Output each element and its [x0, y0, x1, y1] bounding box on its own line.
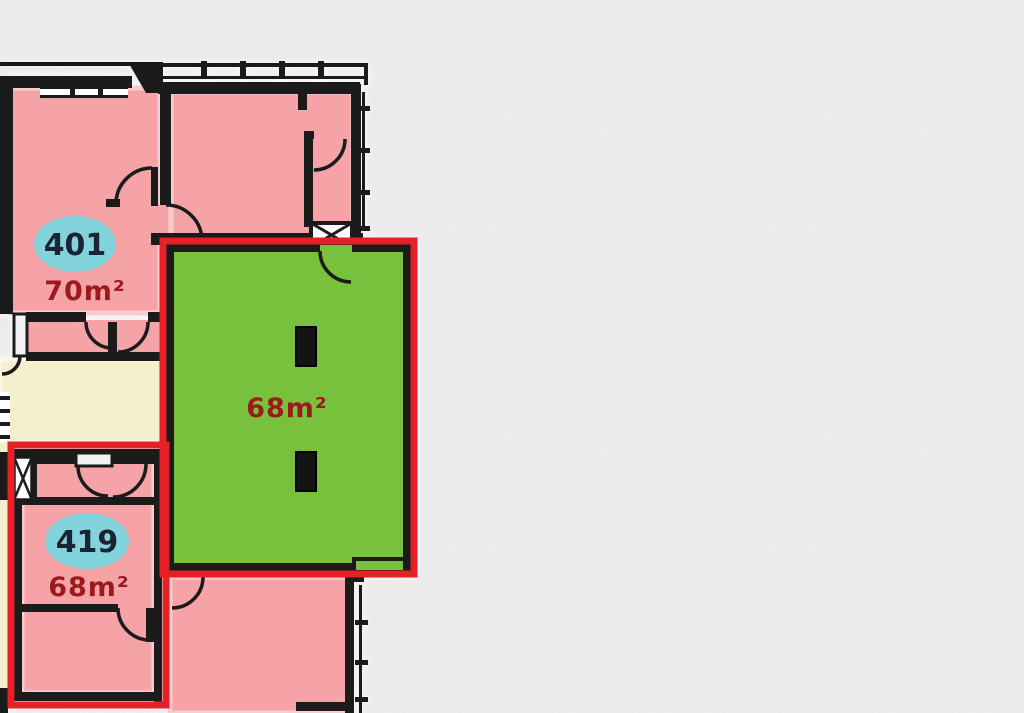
unit-419-area-label: 68m² — [48, 572, 130, 603]
shaft-box-419 — [14, 457, 32, 500]
upper-room[interactable] — [171, 92, 353, 238]
floorplan-viewer: 68m² 401 70m² 419 68m² — [0, 0, 1024, 713]
floorplan-canvas: 68m² 401 70m² 419 68m² — [0, 0, 1024, 713]
selected-unit-window-gap — [356, 561, 403, 570]
unit-419-door-leaf — [76, 453, 112, 466]
unit-419-number: 419 — [56, 525, 119, 560]
selected-unit[interactable]: 68m² — [163, 241, 414, 574]
selected-unit-door-opening — [320, 245, 352, 254]
column-lower — [296, 452, 316, 491]
selected-unit-area-label: 68m² — [246, 393, 328, 424]
unit-401-area-label: 70m² — [44, 276, 126, 307]
floorplan: 68m² 401 70m² 419 68m² — [0, 61, 414, 713]
hallway — [0, 360, 166, 442]
hallway-door-leaf — [14, 314, 27, 356]
column-upper — [296, 327, 316, 366]
unit-401-number: 401 — [44, 228, 107, 263]
unit-419-badge[interactable]: 419 68m² — [45, 513, 130, 603]
